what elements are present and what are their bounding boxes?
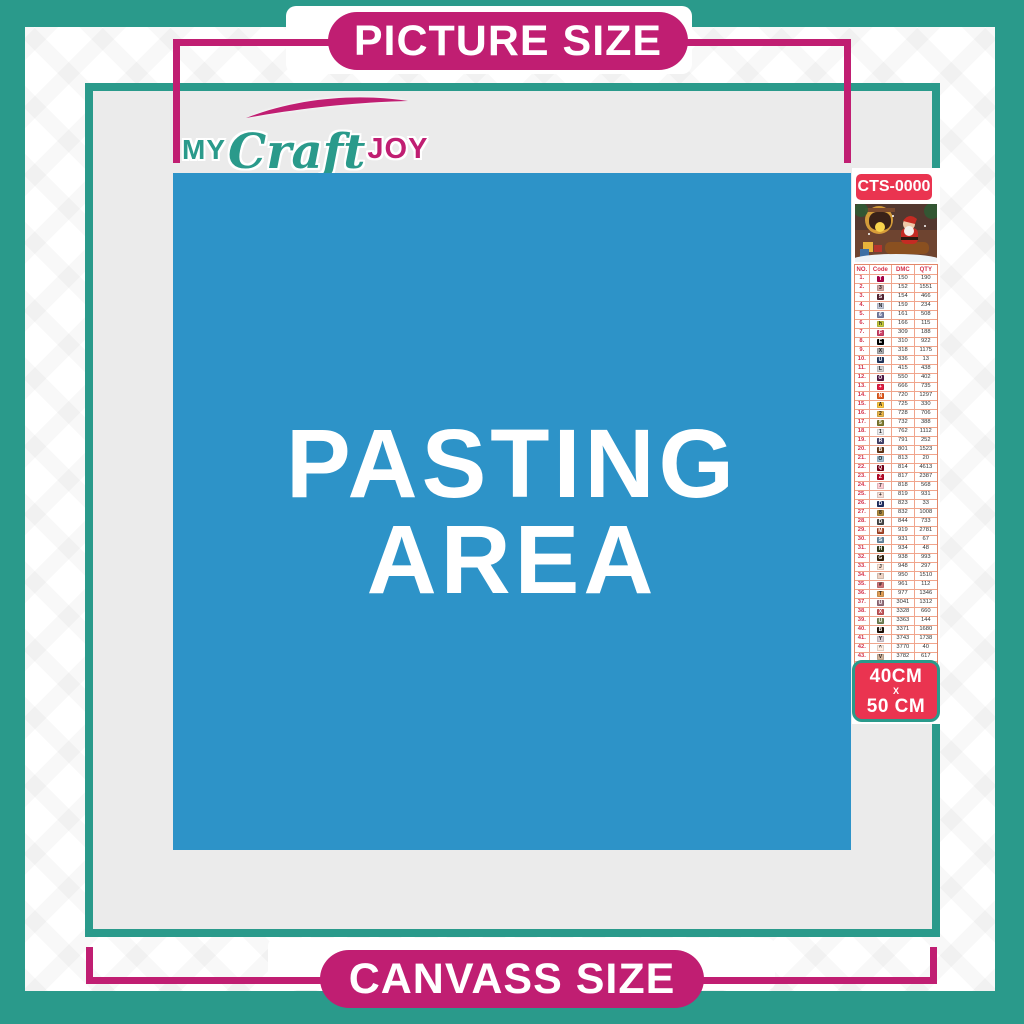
dmc-row: 19.R791252: [855, 437, 937, 446]
color-chip: 6: [877, 312, 884, 319]
pasting-area: PASTING AREA: [173, 173, 851, 850]
color-chip: M: [877, 528, 884, 535]
christmas-scene-thumbnail: [855, 204, 937, 262]
logo-text-joy: JOY: [367, 133, 428, 166]
dmc-row: 1.T150190: [855, 275, 937, 284]
dmc-row: 17.5732388: [855, 419, 937, 428]
dmc-row: 41.Y37431738: [855, 635, 937, 644]
canvass-size-bracket-right-tick: [930, 947, 937, 984]
color-chip: D: [877, 501, 884, 508]
dmc-row: 32.G938993: [855, 554, 937, 563]
dmc-row: 16.2728706: [855, 410, 937, 419]
sku-text: CTS-0000: [858, 178, 931, 196]
color-chip: T: [877, 276, 884, 283]
color-chip: U: [877, 357, 884, 364]
color-chip: 2: [877, 411, 884, 418]
color-chip: L: [877, 366, 884, 373]
dmc-row: 37.U30411312: [855, 599, 937, 608]
dmc-row: 18.17621112: [855, 428, 937, 437]
color-chip: +: [877, 492, 884, 499]
color-chip: 7: [877, 483, 884, 490]
dmc-row: 14.N7201297: [855, 392, 937, 401]
color-chip: #: [877, 582, 884, 589]
picture-size-banner-label: PICTURE SIZE: [354, 17, 662, 66]
dmc-row: 24.7818568: [855, 482, 937, 491]
dmc-row: 21.O81320: [855, 455, 937, 464]
color-chip: A: [877, 402, 884, 409]
color-chip: Y: [877, 636, 884, 643]
color-chip: G: [877, 555, 884, 562]
color-chip: Z: [877, 474, 884, 481]
color-chip: N: [877, 393, 884, 400]
picture-size-bracket-left-tick: [173, 39, 180, 163]
dmc-row: 8.E310922: [855, 338, 937, 347]
size-badge: 40CM X 50 CM: [852, 660, 940, 722]
logo-text-craft: Craft: [228, 134, 365, 171]
color-chip: Q: [877, 465, 884, 472]
brush-swoosh-icon: [242, 92, 414, 122]
color-chip: +: [877, 384, 884, 391]
size-height: 50 CM: [867, 697, 925, 716]
color-chip: J: [877, 564, 884, 571]
logo-text-my: MY: [182, 134, 226, 166]
color-chip: F: [877, 330, 884, 337]
dmc-row: 3.S154466: [855, 293, 937, 302]
color-chip: R: [877, 438, 884, 445]
size-separator: X: [893, 687, 899, 696]
dmc-row: 29.M9192781: [855, 527, 937, 536]
dmc-row: 2.31521551: [855, 284, 937, 293]
color-chip: *: [877, 573, 884, 580]
picture-size-banner: PICTURE SIZE: [328, 12, 688, 70]
dmc-row: 20.B8011523: [855, 446, 937, 455]
color-chip: S: [877, 537, 884, 544]
color-chip: 3: [877, 285, 884, 292]
color-chip: B: [877, 627, 884, 634]
color-chip: D: [877, 519, 884, 526]
color-chip: B: [877, 447, 884, 454]
color-chip: O: [877, 375, 884, 382]
dmc-row: 6.h166115: [855, 320, 937, 329]
dmc-row: 10.U33613: [855, 356, 937, 365]
dmc-row: 30.S93167: [855, 536, 937, 545]
color-chip: 5: [877, 420, 884, 427]
dmc-row: 5.6161508: [855, 311, 937, 320]
pasting-area-label-line2: AREA: [367, 512, 658, 607]
dmc-row: 35.#961112: [855, 581, 937, 590]
canvass-size-banner-label: CANVASS SIZE: [349, 955, 676, 1004]
dmc-table: NO.CodeDMCQTY1.T1501902.315215513.S15446…: [854, 264, 938, 708]
dmc-row: 38.X3328660: [855, 608, 937, 617]
picture-size-bracket-right-tick: [844, 39, 851, 163]
color-chip: 8: [877, 510, 884, 517]
dmc-row: 28.D844733: [855, 518, 937, 527]
color-chip: S: [877, 294, 884, 301]
dmc-row: 12.O550402: [855, 374, 937, 383]
dmc-row: 11.L415438: [855, 365, 937, 374]
canvass-size-bracket-left-tick: [86, 947, 93, 984]
dmc-row: 15.A725330: [855, 401, 937, 410]
color-chip: E: [877, 339, 884, 346]
dmc-row: 22.Q8144613: [855, 464, 937, 473]
dmc-row: 9.X3181175: [855, 347, 937, 356]
dmc-row: 36.T9771346: [855, 590, 937, 599]
dmc-table-header: NO.CodeDMCQTY: [855, 265, 937, 275]
dmc-row: 42.^377040: [855, 644, 937, 653]
dmc-row: 23.Z8172387: [855, 473, 937, 482]
dmc-row: 33.J948297: [855, 563, 937, 572]
color-chip: 1: [877, 429, 884, 436]
dmc-row: 4.N159234: [855, 302, 937, 311]
color-chip: ^: [877, 645, 884, 652]
color-chip: N: [877, 303, 884, 310]
color-chip: X: [877, 348, 884, 355]
sidebar: CTS-0000 NO.CodeDMCQTY1.T1501902.3: [852, 168, 940, 724]
size-width: 40CM: [870, 667, 923, 686]
color-chip: X: [877, 609, 884, 616]
dmc-row: 13.+666735: [855, 383, 937, 392]
dmc-row: 25.+819931: [855, 491, 937, 500]
dmc-row: 34.*9501510: [855, 572, 937, 581]
pasting-area-label-line1: PASTING: [286, 416, 738, 511]
color-chip: U: [877, 600, 884, 607]
brand-logo: MY Craft JOY: [180, 96, 420, 170]
craft-canvas-template: MY Craft JOY PASTING AREA CTS-0000: [0, 0, 1024, 1024]
dmc-row: 40.B33711680: [855, 626, 937, 635]
dmc-row: 7.F309188: [855, 329, 937, 338]
color-chip: H: [877, 546, 884, 553]
dmc-row: 39.U3363144: [855, 617, 937, 626]
color-chip: U: [877, 618, 884, 625]
color-chip: h: [877, 321, 884, 328]
dmc-row: 26.D82333: [855, 500, 937, 509]
canvass-size-banner: CANVASS SIZE: [320, 950, 704, 1008]
color-chip: T: [877, 591, 884, 598]
dmc-row: 27.88321008: [855, 509, 937, 518]
color-chip: O: [877, 456, 884, 463]
sku-badge: CTS-0000: [856, 174, 932, 200]
dmc-row: 31.H93448: [855, 545, 937, 554]
